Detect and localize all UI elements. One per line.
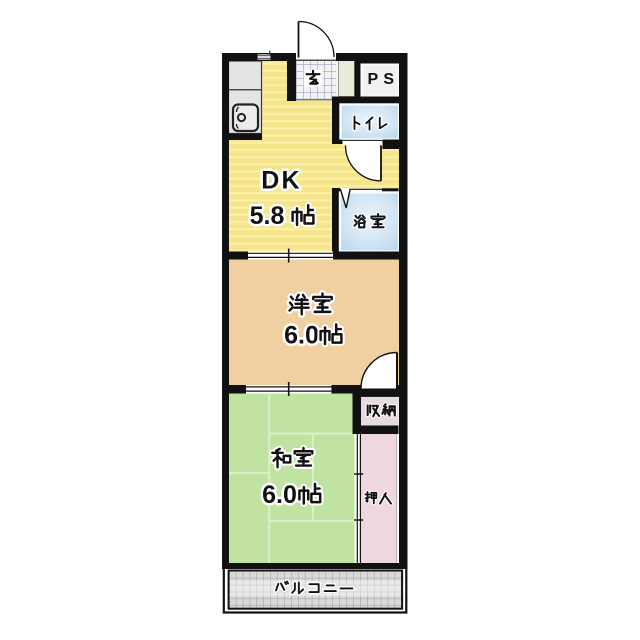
svg-text:DK: DK [261, 167, 302, 195]
svg-text:P S: P S [368, 71, 395, 88]
svg-text:6.0: 6.0 [262, 481, 297, 509]
svg-text:6.0: 6.0 [284, 322, 319, 350]
svg-text:5.8: 5.8 [250, 202, 285, 230]
